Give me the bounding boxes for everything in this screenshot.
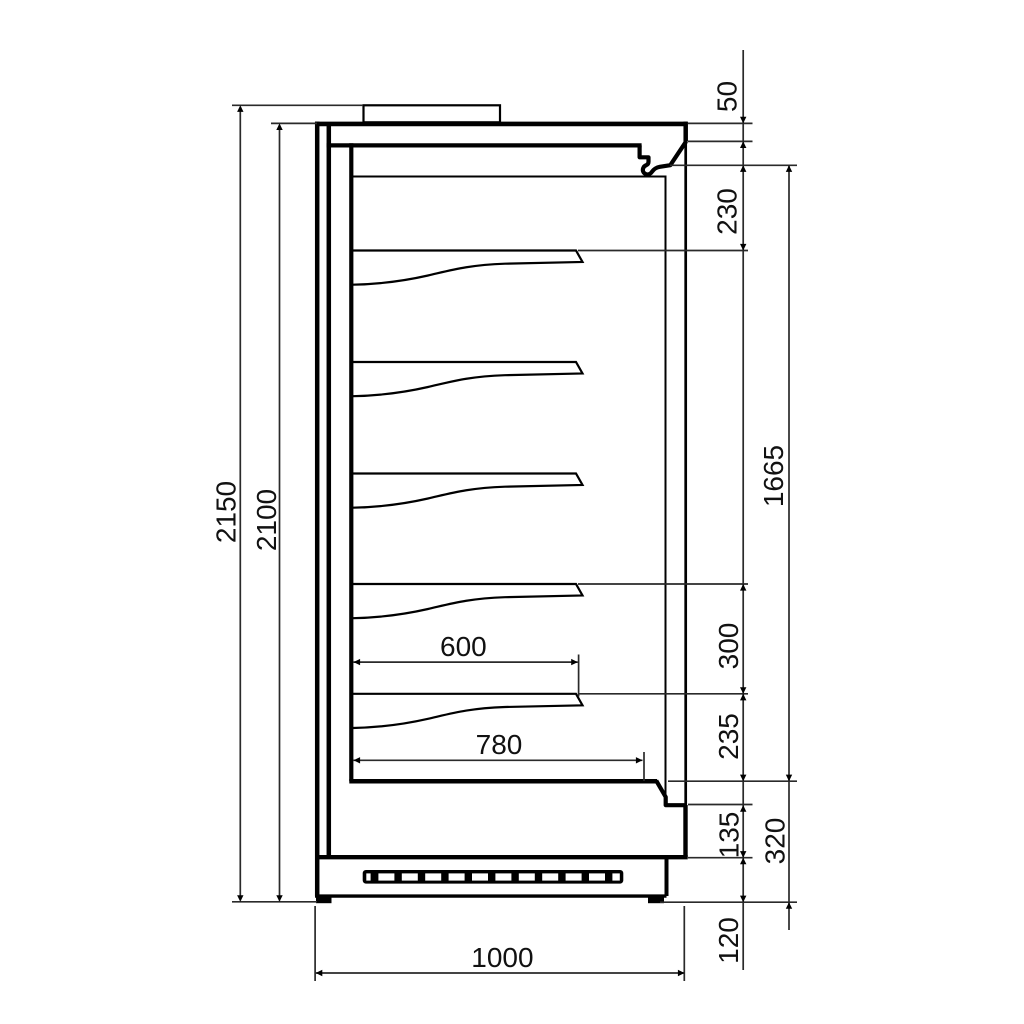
svg-text:120: 120 — [713, 917, 744, 964]
svg-text:230: 230 — [712, 188, 743, 235]
svg-text:50: 50 — [712, 81, 743, 112]
svg-text:780: 780 — [476, 729, 523, 760]
svg-text:300: 300 — [713, 623, 744, 670]
svg-text:2100: 2100 — [251, 489, 282, 551]
svg-text:1665: 1665 — [758, 445, 789, 507]
svg-text:235: 235 — [713, 713, 744, 760]
svg-text:320: 320 — [760, 818, 791, 865]
svg-text:2150: 2150 — [211, 481, 242, 543]
svg-text:135: 135 — [714, 812, 745, 859]
svg-text:1000: 1000 — [471, 942, 533, 973]
svg-text:600: 600 — [440, 631, 487, 662]
